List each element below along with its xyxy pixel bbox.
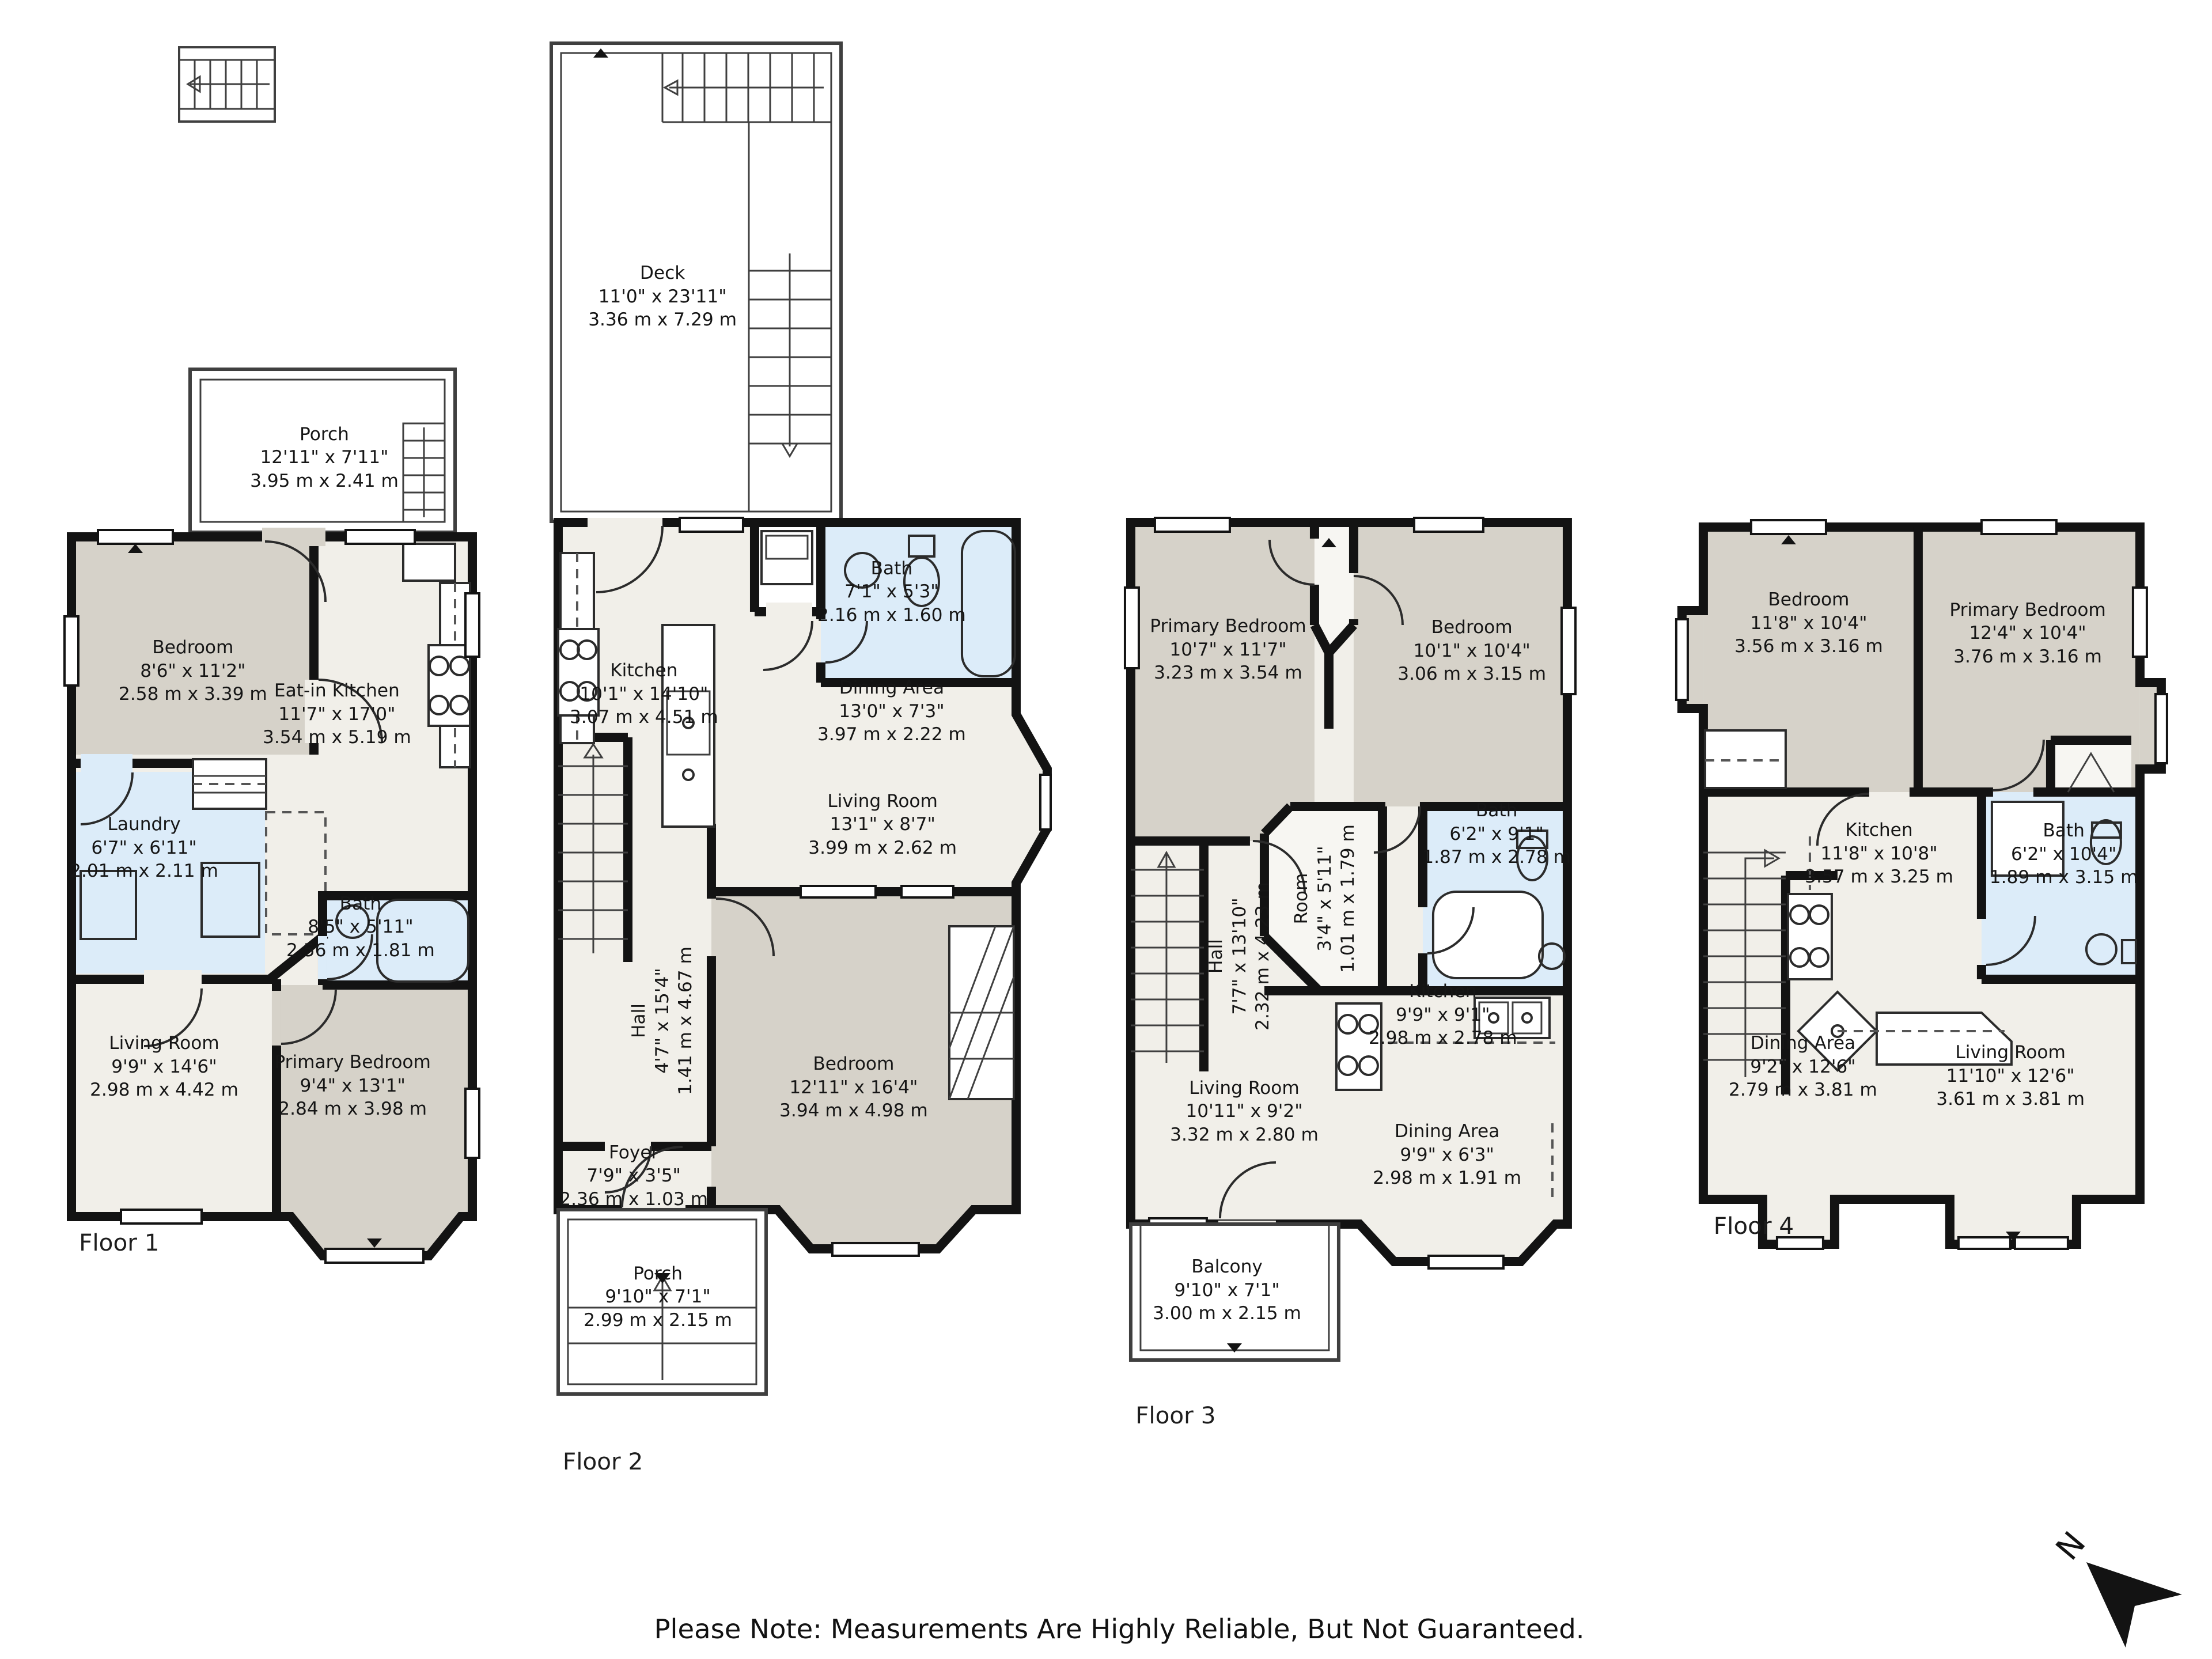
room-label-floor2-porch: Porch 9'10" x 7'1" 2.99 m x 2.15 m bbox=[584, 1262, 732, 1332]
room-dims-imperial: 3'4" x 5'11" bbox=[1313, 824, 1337, 973]
room-dims-metric: 3.76 m x 3.16 m bbox=[1949, 645, 2106, 669]
floor-4-caption: Floor 4 bbox=[1714, 1212, 1794, 1240]
room-dims-metric: 2.32 m x 4.23 m bbox=[1251, 882, 1275, 1031]
room-name: Hall bbox=[627, 946, 651, 1095]
room-dims-metric: 3.94 m x 4.98 m bbox=[779, 1099, 928, 1123]
room-dims-imperial: 7'9" x 3'5" bbox=[559, 1165, 708, 1188]
room-dims-metric: 3.32 m x 2.80 m bbox=[1170, 1123, 1319, 1147]
room-dims-metric: 3.95 m x 2.41 m bbox=[250, 469, 399, 493]
room-name: Primary Bedroom bbox=[1949, 599, 2106, 622]
room-dims-imperial: 6'7" x 6'11" bbox=[70, 836, 218, 860]
room-dims-metric: 3.06 m x 3.15 m bbox=[1397, 662, 1546, 686]
room-dims-imperial: 4'7" x 15'4" bbox=[651, 946, 675, 1095]
room-name: Primary Bedroom bbox=[1150, 615, 1306, 638]
room-dims-metric: 2.98 m x 2.78 m bbox=[1369, 1027, 1517, 1050]
room-dims-imperial: 7'7" x 13'10" bbox=[1228, 882, 1252, 1031]
room-dims-imperial: 9'10" x 7'1" bbox=[584, 1286, 732, 1309]
room-dims-metric: 2.36 m x 1.03 m bbox=[559, 1188, 708, 1211]
room-dims-metric: 1.41 m x 4.67 m bbox=[674, 946, 698, 1095]
room-dims-imperial: 9'2" x 12'6" bbox=[1729, 1055, 1877, 1079]
room-label-floor1-bedroom: Bedroom 8'6" x 11'2" 2.58 m x 3.39 m bbox=[119, 636, 267, 706]
room-dims-imperial: 9'9" x 9'1" bbox=[1369, 1003, 1517, 1027]
room-dims-imperial: 8'5" x 5'11" bbox=[286, 916, 435, 940]
room-label-floor1-living-room: Living Room 9'9" x 14'6" 2.98 m x 4.42 m bbox=[90, 1032, 238, 1102]
room-dims-imperial: 10'11" x 9'2" bbox=[1170, 1100, 1319, 1124]
room-name: Bedroom bbox=[119, 636, 267, 660]
room-name: Kitchen bbox=[1369, 980, 1517, 1003]
room-label-floor3-kitchen: Kitchen 9'9" x 9'1" 2.98 m x 2.78 m bbox=[1369, 980, 1517, 1050]
room-label-floor2-hall: Hall 4'7" x 15'4" 1.41 m x 4.67 m bbox=[627, 946, 698, 1095]
room-name: Bedroom bbox=[1397, 616, 1546, 639]
measurement-disclaimer: Please Note: Measurements Are Highly Rel… bbox=[654, 1613, 1585, 1645]
room-name: Porch bbox=[584, 1262, 732, 1286]
room-dims-metric: 2.98 m x 4.42 m bbox=[90, 1078, 238, 1102]
room-name: Living Room bbox=[1170, 1077, 1319, 1100]
room-label-floor4-kitchen: Kitchen 11'8" x 10'8" 3.57 m x 3.25 m bbox=[1805, 819, 1953, 889]
room-name: Room bbox=[1290, 824, 1313, 973]
room-dims-imperial: 12'4" x 10'4" bbox=[1949, 622, 2106, 646]
room-label-floor1-bath: Bath 8'5" x 5'11" 2.56 m x 1.81 m bbox=[286, 892, 435, 963]
room-label-floor2-bath: Bath 7'1" x 5'3" 2.16 m x 1.60 m bbox=[817, 557, 966, 627]
room-name: Balcony bbox=[1153, 1255, 1301, 1279]
room-name: Porch bbox=[250, 423, 399, 446]
room-name: Dining Area bbox=[1373, 1120, 1521, 1143]
room-dims-metric: 3.56 m x 3.16 m bbox=[1734, 635, 1883, 658]
room-dims-imperial: 11'7" x 17'0" bbox=[263, 703, 411, 726]
room-name: Kitchen bbox=[570, 659, 718, 683]
room-label-floor3-primary-bedroom: Primary Bedroom 10'7" x 11'7" 3.23 m x 3… bbox=[1150, 615, 1306, 685]
room-label-floor1-laundry: Laundry 6'7" x 6'11" 2.01 m x 2.11 m bbox=[70, 813, 218, 883]
room-dims-imperial: 11'0" x 23'11" bbox=[588, 285, 737, 309]
room-dims-imperial: 11'8" x 10'8" bbox=[1805, 842, 1953, 866]
room-dims-imperial: 7'1" x 5'3" bbox=[817, 581, 966, 604]
room-label-floor4-primary-bedroom: Primary Bedroom 12'4" x 10'4" 3.76 m x 3… bbox=[1949, 599, 2106, 669]
room-label-floor2-deck: Deck 11'0" x 23'11" 3.36 m x 7.29 m bbox=[588, 262, 737, 332]
room-label-floor3-hall: Hall 7'7" x 13'10" 2.32 m x 4.23 m bbox=[1205, 882, 1275, 1031]
room-dims-metric: 3.23 m x 3.54 m bbox=[1150, 661, 1306, 685]
room-dims-metric: 3.97 m x 2.22 m bbox=[817, 723, 966, 747]
floor-3-caption: Floor 3 bbox=[1135, 1402, 1215, 1429]
room-label-floor4-dining-area: Dining Area 9'2" x 12'6" 2.79 m x 3.81 m bbox=[1729, 1032, 1877, 1102]
room-dims-imperial: 11'10" x 12'6" bbox=[1936, 1065, 2085, 1088]
room-label-floor4-bath: Bath 6'2" x 10'4" 1.89 m x 3.15 m bbox=[1990, 819, 2138, 889]
floor-2-caption: Floor 2 bbox=[563, 1448, 643, 1475]
room-labels-layer: Porch 12'11" x 7'11" 3.95 m x 2.41 m Bed… bbox=[0, 0, 2212, 1659]
room-dims-metric: 2.56 m x 1.81 m bbox=[286, 939, 435, 963]
room-label-floor1-eat-in-kitchen: Eat-in Kitchen 11'7" x 17'0" 3.54 m x 5.… bbox=[263, 679, 411, 749]
room-dims-metric: 3.54 m x 5.19 m bbox=[263, 726, 411, 749]
room-dims-imperial: 8'6" x 11'2" bbox=[119, 660, 267, 683]
room-dims-imperial: 6'2" x 9'1" bbox=[1422, 823, 1571, 846]
room-dims-imperial: 9'9" x 6'3" bbox=[1373, 1143, 1521, 1167]
room-dims-metric: 2.58 m x 3.39 m bbox=[119, 683, 267, 706]
room-name: Bath bbox=[1422, 799, 1571, 823]
room-name: Kitchen bbox=[1805, 819, 1953, 842]
room-label-floor2-living-room: Living Room 13'1" x 8'7" 3.99 m x 2.62 m bbox=[808, 790, 957, 860]
room-dims-metric: 3.57 m x 3.25 m bbox=[1805, 865, 1953, 889]
room-dims-imperial: 10'1" x 10'4" bbox=[1397, 639, 1546, 663]
room-name: Foyer bbox=[559, 1141, 708, 1165]
room-name: Dining Area bbox=[1729, 1032, 1877, 1055]
room-dims-metric: 1.89 m x 3.15 m bbox=[1990, 866, 2138, 889]
room-dims-metric: 3.07 m x 4.51 m bbox=[570, 706, 718, 729]
room-name: Eat-in Kitchen bbox=[263, 679, 411, 703]
room-label-floor3-bath: Bath 6'2" x 9'1" 1.87 m x 2.78 m bbox=[1422, 799, 1571, 869]
room-dims-metric: 2.01 m x 2.11 m bbox=[70, 859, 218, 883]
room-name: Dining Area bbox=[817, 676, 966, 700]
room-dims-imperial: 12'11" x 16'4" bbox=[779, 1076, 928, 1100]
room-name: Bath bbox=[817, 557, 966, 581]
room-dims-metric: 1.01 m x 1.79 m bbox=[1336, 824, 1360, 973]
room-name: Laundry bbox=[70, 813, 218, 836]
room-label-floor4-bedroom: Bedroom 11'8" x 10'4" 3.56 m x 3.16 m bbox=[1734, 588, 1883, 658]
room-dims-metric: 1.87 m x 2.78 m bbox=[1422, 846, 1571, 869]
room-dims-metric: 3.36 m x 7.29 m bbox=[588, 308, 737, 332]
room-label-floor1-primary-bedroom: Primary Bedroom 9'4" x 13'1" 2.84 m x 3.… bbox=[274, 1051, 431, 1121]
room-label-floor3-room: Room 3'4" x 5'11" 1.01 m x 1.79 m bbox=[1290, 824, 1360, 973]
room-dims-imperial: 9'4" x 13'1" bbox=[274, 1074, 431, 1098]
room-dims-imperial: 13'1" x 8'7" bbox=[808, 813, 957, 837]
room-name: Deck bbox=[588, 262, 737, 285]
room-dims-imperial: 9'9" x 14'6" bbox=[90, 1055, 238, 1079]
room-label-floor3-dining-area: Dining Area 9'9" x 6'3" 2.98 m x 1.91 m bbox=[1373, 1120, 1521, 1190]
room-label-floor2-dining-area: Dining Area 13'0" x 7'3" 3.97 m x 2.22 m bbox=[817, 676, 966, 747]
room-dims-metric: 2.16 m x 1.60 m bbox=[817, 604, 966, 627]
room-label-floor3-bedroom: Bedroom 10'1" x 10'4" 3.06 m x 3.15 m bbox=[1397, 616, 1546, 686]
room-dims-metric: 2.79 m x 3.81 m bbox=[1729, 1078, 1877, 1102]
room-label-floor2-kitchen: Kitchen 10'1" x 14'10" 3.07 m x 4.51 m bbox=[570, 659, 718, 729]
floorplan-sheet: N Porch 12'11" x 7'11" 3.95 m x 2.41 m B… bbox=[0, 0, 2212, 1659]
room-dims-metric: 3.99 m x 2.62 m bbox=[808, 836, 957, 860]
room-label-floor4-living-room: Living Room 11'10" x 12'6" 3.61 m x 3.81… bbox=[1936, 1041, 2085, 1111]
room-label-floor3-balcony: Balcony 9'10" x 7'1" 3.00 m x 2.15 m bbox=[1153, 1255, 1301, 1325]
floor-1-caption: Floor 1 bbox=[79, 1229, 159, 1256]
room-label-floor2-foyer: Foyer 7'9" x 3'5" 2.36 m x 1.03 m bbox=[559, 1141, 708, 1211]
room-name: Primary Bedroom bbox=[274, 1051, 431, 1074]
room-dims-imperial: 10'7" x 11'7" bbox=[1150, 638, 1306, 662]
room-name: Bedroom bbox=[779, 1052, 928, 1076]
room-label-floor3-living-room: Living Room 10'11" x 9'2" 3.32 m x 2.80 … bbox=[1170, 1077, 1319, 1147]
room-label-floor2-bedroom: Bedroom 12'11" x 16'4" 3.94 m x 4.98 m bbox=[779, 1052, 928, 1123]
room-name: Living Room bbox=[808, 790, 957, 813]
room-dims-imperial: 12'11" x 7'11" bbox=[250, 446, 399, 470]
room-dims-metric: 3.61 m x 3.81 m bbox=[1936, 1088, 2085, 1111]
room-name: Bedroom bbox=[1734, 588, 1883, 612]
room-name: Living Room bbox=[90, 1032, 238, 1055]
room-dims-imperial: 10'1" x 14'10" bbox=[570, 683, 718, 706]
room-dims-imperial: 13'0" x 7'3" bbox=[817, 700, 966, 724]
room-name: Bath bbox=[286, 892, 435, 916]
room-dims-imperial: 11'8" x 10'4" bbox=[1734, 612, 1883, 635]
room-dims-metric: 2.84 m x 3.98 m bbox=[274, 1097, 431, 1121]
room-name: Bath bbox=[1990, 819, 2138, 843]
room-dims-metric: 3.00 m x 2.15 m bbox=[1153, 1302, 1301, 1325]
room-dims-metric: 2.98 m x 1.91 m bbox=[1373, 1166, 1521, 1190]
room-label-floor1-porch: Porch 12'11" x 7'11" 3.95 m x 2.41 m bbox=[250, 423, 399, 493]
room-dims-imperial: 6'2" x 10'4" bbox=[1990, 843, 2138, 866]
room-name: Hall bbox=[1205, 882, 1228, 1031]
room-name: Living Room bbox=[1936, 1041, 2085, 1065]
room-dims-imperial: 9'10" x 7'1" bbox=[1153, 1279, 1301, 1302]
room-dims-metric: 2.99 m x 2.15 m bbox=[584, 1309, 732, 1332]
